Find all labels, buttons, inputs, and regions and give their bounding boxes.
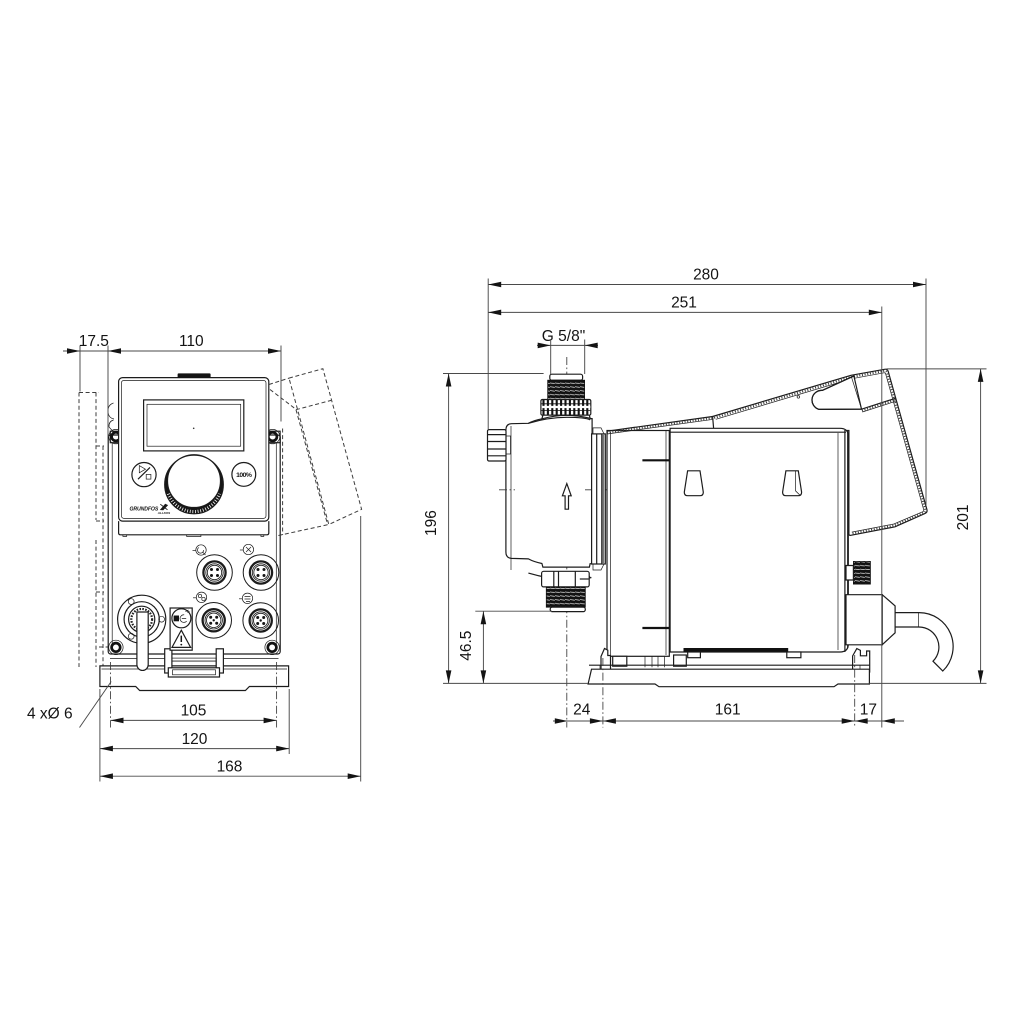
- svg-text:G 5/8": G 5/8": [542, 328, 585, 345]
- svg-text:280: 280: [693, 267, 719, 284]
- svg-text:17.5: 17.5: [79, 333, 109, 350]
- svg-text:105: 105: [181, 703, 207, 720]
- svg-text:161: 161: [715, 702, 741, 719]
- svg-text:168: 168: [217, 758, 243, 775]
- svg-text:17: 17: [860, 702, 877, 719]
- svg-text:24: 24: [573, 702, 591, 719]
- svg-text:196: 196: [423, 510, 440, 536]
- svg-text:4 xØ 6: 4 xØ 6: [27, 706, 73, 723]
- svg-text:201: 201: [955, 504, 972, 530]
- svg-text:120: 120: [182, 731, 208, 748]
- svg-text:100%: 100%: [236, 472, 252, 479]
- svg-text:46.5: 46.5: [458, 631, 475, 661]
- svg-text:251: 251: [671, 294, 697, 311]
- svg-text:110: 110: [179, 333, 204, 350]
- svg-text:ALLDOS: ALLDOS: [157, 511, 170, 515]
- svg-text:GRUNDFOS: GRUNDFOS: [130, 507, 159, 513]
